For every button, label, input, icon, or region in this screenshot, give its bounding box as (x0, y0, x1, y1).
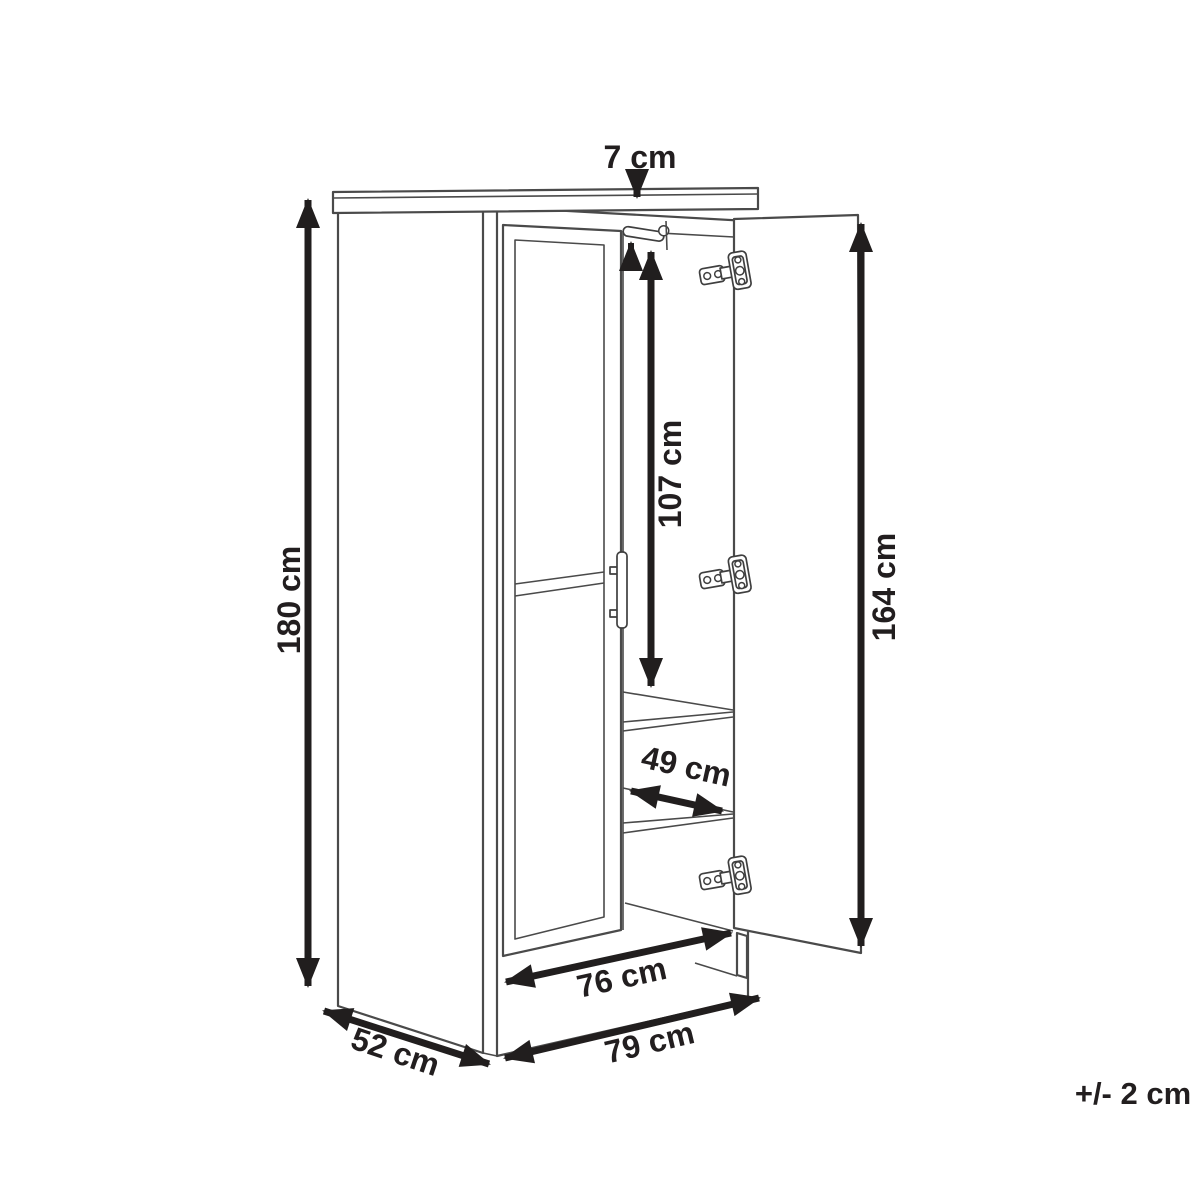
wardrobe-drawing: 7 cm 180 cm 107 cm 164 cm 49 cm 76 cm 79… (0, 0, 1200, 1200)
dimension-door-height: 164 cm (861, 224, 902, 946)
dimension-height: 180 cm (271, 200, 308, 986)
top-panel (333, 188, 758, 213)
right-door-open (734, 215, 861, 953)
dim-rail-height-label: 107 cm (652, 420, 688, 529)
tolerance-note: +/- 2 cm (1075, 1076, 1191, 1111)
left-door-closed (503, 225, 627, 956)
dimension-diagram: 7 cm 180 cm 107 cm 164 cm 49 cm 76 cm 79… (0, 0, 1200, 1200)
dim-top-thickness-label: 7 cm (604, 139, 677, 175)
side-panel (338, 199, 483, 1053)
dim-height-label: 180 cm (271, 546, 307, 655)
dim-door-height-label: 164 cm (866, 533, 902, 642)
